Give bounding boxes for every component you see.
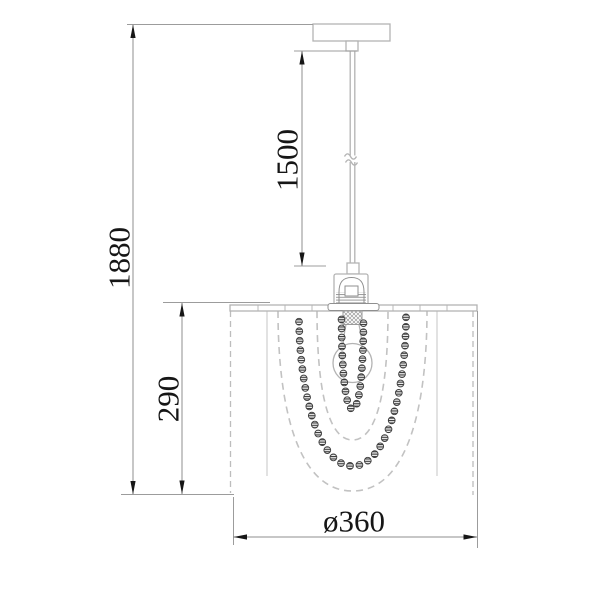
bead bbox=[338, 325, 345, 332]
bead bbox=[315, 430, 322, 437]
bead bbox=[364, 457, 371, 464]
bead bbox=[359, 356, 366, 363]
bead bbox=[330, 454, 337, 461]
bead bbox=[359, 365, 366, 372]
dim-shade-height: 290 bbox=[151, 303, 271, 495]
bead bbox=[341, 379, 348, 386]
dim-overall-height: 1880 bbox=[102, 25, 314, 495]
arrow-down-icon bbox=[299, 253, 304, 267]
outer-bead-chain bbox=[299, 317, 406, 466]
suspension-length-label: 1500 bbox=[270, 129, 305, 191]
socket-barrel bbox=[343, 311, 362, 325]
bead bbox=[403, 323, 410, 330]
bead bbox=[306, 403, 313, 410]
bead bbox=[360, 338, 367, 345]
bead-swags bbox=[296, 314, 410, 469]
bead bbox=[357, 383, 364, 390]
bead bbox=[342, 388, 349, 395]
bead bbox=[381, 435, 388, 442]
socket-cap bbox=[347, 263, 359, 274]
bead bbox=[299, 366, 306, 373]
bead bbox=[339, 343, 346, 350]
bead bbox=[296, 318, 303, 325]
socket-notch bbox=[345, 286, 358, 296]
bead bbox=[297, 347, 304, 354]
bead bbox=[358, 374, 365, 381]
bead bbox=[347, 405, 354, 412]
bead bbox=[393, 399, 400, 406]
arrow-right-icon bbox=[464, 534, 478, 539]
bead bbox=[308, 412, 315, 419]
bead bbox=[360, 347, 367, 354]
bead bbox=[385, 426, 392, 433]
bead bbox=[356, 462, 363, 469]
bead bbox=[311, 421, 318, 428]
suspension-cord bbox=[345, 51, 358, 263]
bead bbox=[298, 356, 305, 363]
bead bbox=[347, 463, 354, 470]
shade-diameter-label: ø360 bbox=[323, 504, 385, 539]
bead bbox=[371, 451, 378, 458]
bead bbox=[400, 361, 407, 368]
arrow-up-icon bbox=[179, 303, 184, 317]
socket-flange bbox=[328, 304, 379, 311]
shade-height-label: 290 bbox=[151, 376, 186, 423]
bead bbox=[403, 314, 410, 321]
arrow-down-icon bbox=[179, 481, 184, 495]
ceiling-canopy bbox=[313, 24, 390, 51]
arrow-down-icon bbox=[130, 481, 135, 495]
bead bbox=[319, 439, 326, 446]
bead bbox=[353, 400, 360, 407]
bead bbox=[402, 342, 409, 349]
arrow-up-icon bbox=[130, 25, 135, 39]
bead bbox=[302, 385, 309, 392]
bead bbox=[338, 460, 345, 467]
dim-suspension-length: 1500 bbox=[270, 51, 358, 266]
bead bbox=[296, 328, 303, 335]
bead bbox=[399, 371, 406, 378]
bead bbox=[360, 320, 367, 327]
bead bbox=[356, 392, 363, 399]
bead bbox=[296, 337, 303, 344]
bead bbox=[304, 394, 311, 401]
pendant-lamp-drawing: 1880 1500 290 ø360 bbox=[0, 0, 600, 600]
bead bbox=[397, 380, 404, 387]
drawing-canvas: 1880 1500 290 ø360 bbox=[0, 0, 600, 600]
bead bbox=[300, 375, 307, 382]
canopy-plate bbox=[313, 24, 390, 41]
canopy-connector bbox=[346, 41, 358, 51]
overall-height-label: 1880 bbox=[102, 227, 137, 289]
dim-shade-diameter: ø360 bbox=[233, 311, 478, 548]
bead bbox=[338, 316, 345, 323]
bead bbox=[324, 447, 331, 454]
lamp-socket bbox=[328, 263, 379, 325]
bead bbox=[340, 370, 347, 377]
bead bbox=[377, 443, 384, 450]
bead bbox=[402, 333, 409, 340]
bead bbox=[344, 397, 351, 404]
bead bbox=[339, 361, 346, 368]
arrow-left-icon bbox=[234, 534, 248, 539]
bead bbox=[401, 352, 408, 359]
bead bbox=[360, 329, 367, 336]
inner-swag-curve bbox=[317, 311, 388, 440]
bead bbox=[338, 334, 345, 341]
arrow-up-icon bbox=[299, 51, 304, 65]
cord-break-icon bbox=[345, 154, 358, 165]
bead bbox=[395, 389, 402, 396]
bead bbox=[388, 417, 395, 424]
bead bbox=[391, 408, 398, 415]
bead bbox=[339, 352, 346, 359]
